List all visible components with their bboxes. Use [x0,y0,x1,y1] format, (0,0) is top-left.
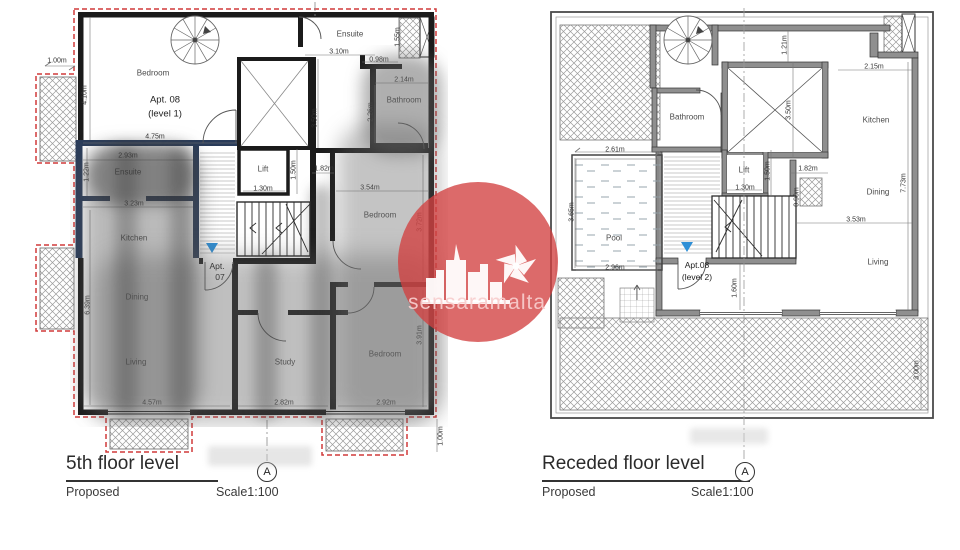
left-stairs [237,202,310,256]
floor-plan-linework [0,0,960,550]
right-pool [572,155,662,270]
floor-plan-sheet: { "watermark": { "text": "sensaramalta" … [0,0,960,550]
level-marker-triangle-right [681,242,693,252]
left-plan [36,2,437,461]
right-lift-box [727,155,763,193]
right-plan [551,8,933,461]
left-corridor-hatch [200,152,235,256]
left-lift-box [239,149,288,194]
right-stairs [712,196,796,258]
level-marker-triangle-left [206,243,218,253]
